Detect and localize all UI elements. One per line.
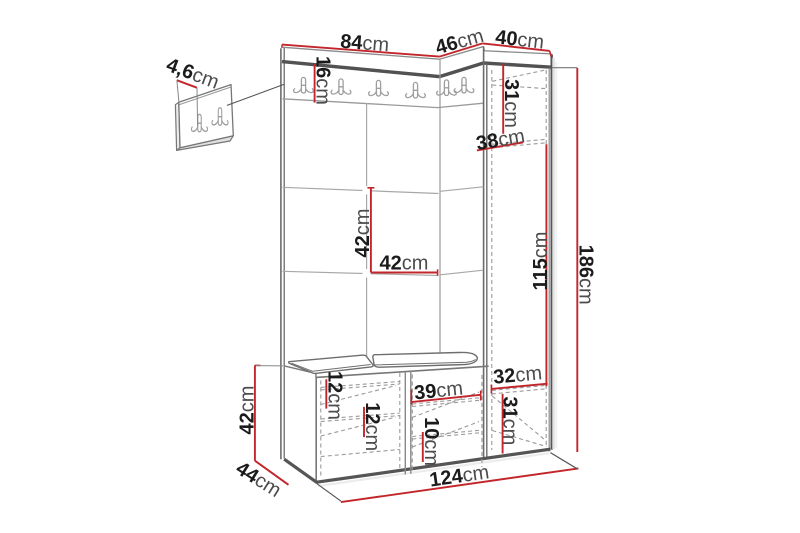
svg-text:186cm: 186cm <box>574 245 596 305</box>
svg-text:115cm: 115cm <box>530 232 552 291</box>
svg-text:12cm: 12cm <box>361 402 383 451</box>
svg-text:42cm: 42cm <box>380 253 429 275</box>
svg-text:31cm: 31cm <box>499 396 521 445</box>
svg-text:12cm: 12cm <box>323 371 345 420</box>
svg-text:32cm: 32cm <box>492 362 543 388</box>
svg-text:42cm: 42cm <box>236 386 258 435</box>
svg-text:42cm: 42cm <box>352 209 374 258</box>
svg-text:10cm: 10cm <box>420 417 442 466</box>
svg-text:16cm: 16cm <box>312 56 334 105</box>
svg-text:84cm: 84cm <box>339 31 389 57</box>
svg-text:31cm: 31cm <box>500 79 522 128</box>
